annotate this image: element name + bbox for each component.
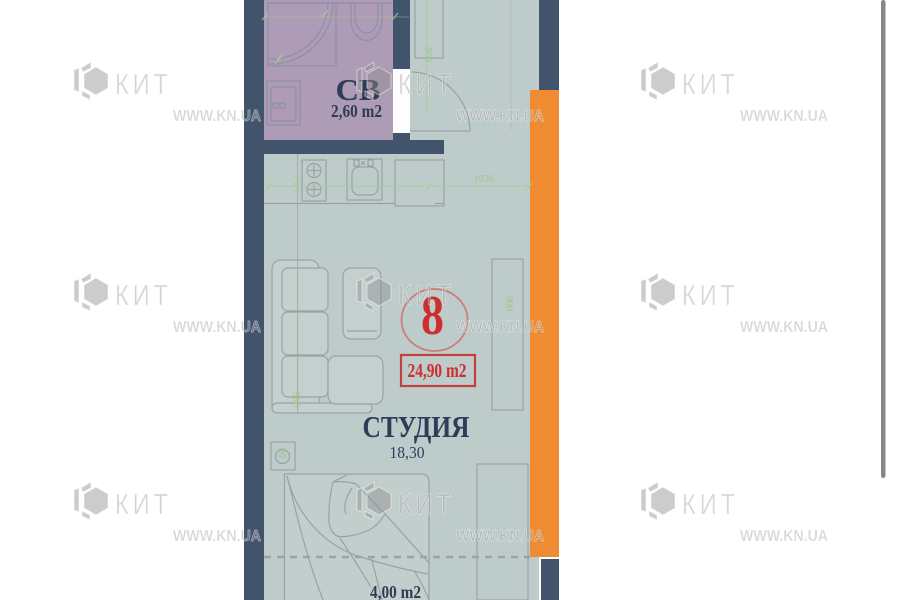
svg-text:18,30: 18,30 — [390, 443, 425, 462]
svg-text:900: 900 — [503, 296, 514, 311]
svg-text:2,60 m2: 2,60 m2 — [331, 101, 382, 121]
svg-text:90: 90 — [276, 448, 287, 458]
svg-text:4,00 m2: 4,00 m2 — [370, 582, 421, 600]
svg-text:СТУДИЯ: СТУДИЯ — [363, 409, 470, 444]
svg-text:24,90 m2: 24,90 m2 — [408, 360, 467, 382]
svg-text:960: 960 — [290, 392, 301, 407]
svg-text:800: 800 — [422, 47, 433, 62]
svg-text:1036: 1036 — [474, 174, 494, 185]
